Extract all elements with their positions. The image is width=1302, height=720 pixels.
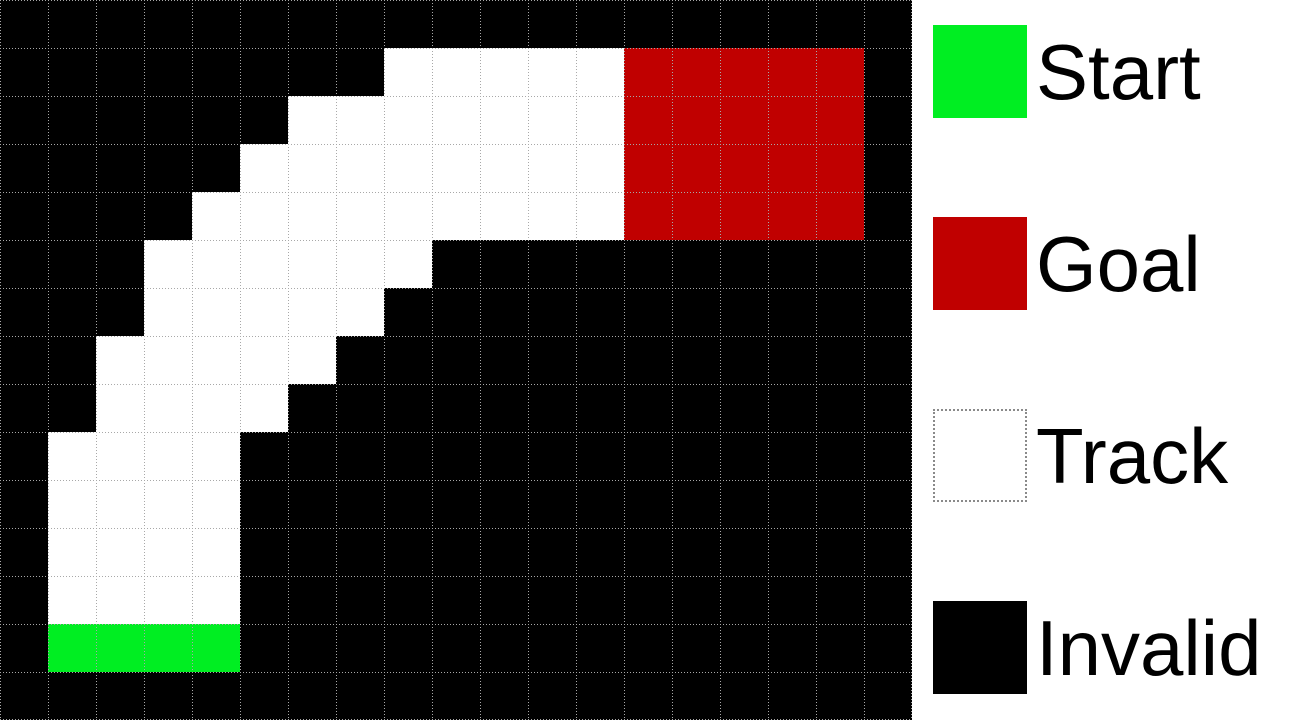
legend-item-track: Track bbox=[933, 409, 1228, 502]
grid-cell bbox=[864, 144, 912, 192]
grid-cell bbox=[96, 480, 144, 528]
grid-cell bbox=[48, 0, 96, 48]
grid-cell bbox=[768, 480, 816, 528]
grid-cell bbox=[672, 672, 720, 720]
grid-cell bbox=[720, 288, 768, 336]
grid-cell bbox=[336, 192, 384, 240]
grid-cell bbox=[144, 672, 192, 720]
grid-cell bbox=[816, 144, 864, 192]
grid-cell bbox=[672, 624, 720, 672]
grid-cell bbox=[768, 624, 816, 672]
grid-cell bbox=[96, 384, 144, 432]
grid-cell bbox=[192, 240, 240, 288]
grid-cell bbox=[192, 528, 240, 576]
grid-cell bbox=[144, 192, 192, 240]
grid-cell bbox=[384, 528, 432, 576]
grid-cell bbox=[432, 384, 480, 432]
grid-cell bbox=[96, 288, 144, 336]
grid-cell bbox=[288, 480, 336, 528]
grid-cell bbox=[0, 144, 48, 192]
grid-cell bbox=[864, 624, 912, 672]
grid-cell bbox=[576, 336, 624, 384]
grid-cell bbox=[672, 144, 720, 192]
grid-cell bbox=[144, 336, 192, 384]
legend-label-start: Start bbox=[1036, 33, 1201, 111]
grid-cell bbox=[576, 48, 624, 96]
start-swatch bbox=[933, 25, 1027, 118]
grid-cell bbox=[576, 144, 624, 192]
legend-item-invalid: Invalid bbox=[933, 601, 1261, 694]
grid-cell bbox=[144, 240, 192, 288]
racetrack-visualization: Start Goal Track Invalid bbox=[0, 0, 1302, 720]
grid-cell bbox=[240, 96, 288, 144]
grid-cell bbox=[144, 624, 192, 672]
grid-cell bbox=[624, 48, 672, 96]
grid-cell bbox=[720, 96, 768, 144]
grid-cell bbox=[0, 240, 48, 288]
grid-cell bbox=[816, 240, 864, 288]
grid-cell bbox=[528, 192, 576, 240]
grid-cell bbox=[624, 384, 672, 432]
grid-cell bbox=[672, 288, 720, 336]
grid-cell bbox=[528, 624, 576, 672]
grid-cell bbox=[432, 672, 480, 720]
grid-cell bbox=[672, 336, 720, 384]
grid-cell bbox=[384, 432, 432, 480]
grid-cell bbox=[240, 240, 288, 288]
grid-cell bbox=[768, 528, 816, 576]
grid-cell bbox=[288, 48, 336, 96]
grid-cell bbox=[288, 96, 336, 144]
grid-cell bbox=[480, 480, 528, 528]
grid-cell bbox=[144, 528, 192, 576]
grid-cell bbox=[816, 576, 864, 624]
grid-cell bbox=[336, 336, 384, 384]
grid-cell bbox=[480, 288, 528, 336]
grid-cell bbox=[144, 480, 192, 528]
grid-cell bbox=[768, 288, 816, 336]
grid-cell bbox=[480, 576, 528, 624]
grid-cell bbox=[720, 384, 768, 432]
grid-cell bbox=[528, 96, 576, 144]
grid-cell bbox=[480, 672, 528, 720]
grid-cell bbox=[288, 0, 336, 48]
grid-cell bbox=[96, 336, 144, 384]
grid-cell bbox=[432, 576, 480, 624]
grid-cell bbox=[288, 336, 336, 384]
grid-cell bbox=[576, 672, 624, 720]
grid-cell bbox=[864, 240, 912, 288]
grid-cell bbox=[768, 672, 816, 720]
grid-cell bbox=[240, 432, 288, 480]
grid-cell bbox=[384, 624, 432, 672]
grid-cell bbox=[432, 192, 480, 240]
grid-cell bbox=[720, 0, 768, 48]
grid-cell bbox=[384, 672, 432, 720]
grid-cell bbox=[0, 96, 48, 144]
grid-cell bbox=[96, 432, 144, 480]
grid-cell bbox=[240, 672, 288, 720]
grid-cell bbox=[432, 0, 480, 48]
grid-cell bbox=[48, 288, 96, 336]
grid-cell bbox=[336, 480, 384, 528]
grid-cell bbox=[816, 192, 864, 240]
grid-cell bbox=[432, 480, 480, 528]
grid-cell bbox=[0, 336, 48, 384]
grid-cell bbox=[864, 432, 912, 480]
grid-cell bbox=[384, 576, 432, 624]
grid-cell bbox=[96, 624, 144, 672]
grid-cell bbox=[624, 240, 672, 288]
grid-cell bbox=[336, 672, 384, 720]
grid-cell bbox=[768, 576, 816, 624]
grid-cell bbox=[240, 528, 288, 576]
grid-cell bbox=[0, 480, 48, 528]
grid-cell bbox=[528, 0, 576, 48]
grid-cell bbox=[0, 0, 48, 48]
grid-cell bbox=[528, 480, 576, 528]
grid-cell bbox=[528, 576, 576, 624]
grid-cell bbox=[432, 624, 480, 672]
grid-cell bbox=[384, 0, 432, 48]
legend-label-invalid: Invalid bbox=[1036, 609, 1261, 687]
grid-cell bbox=[240, 288, 288, 336]
grid-cell bbox=[48, 576, 96, 624]
grid-cell bbox=[816, 48, 864, 96]
grid-cell bbox=[768, 336, 816, 384]
grid-cell bbox=[240, 0, 288, 48]
grid-cell bbox=[192, 672, 240, 720]
grid-cell bbox=[576, 480, 624, 528]
grid-cell bbox=[240, 144, 288, 192]
grid-cell bbox=[864, 480, 912, 528]
grid-cell bbox=[624, 480, 672, 528]
grid-cell bbox=[432, 336, 480, 384]
grid-cell bbox=[720, 432, 768, 480]
grid-cell bbox=[528, 432, 576, 480]
legend: Start Goal Track Invalid bbox=[912, 0, 1302, 720]
grid-cell bbox=[0, 672, 48, 720]
grid-cell bbox=[528, 144, 576, 192]
grid-cell bbox=[96, 144, 144, 192]
grid-cell bbox=[96, 576, 144, 624]
grid-cell bbox=[96, 240, 144, 288]
grid-cell bbox=[816, 96, 864, 144]
grid-cell bbox=[528, 336, 576, 384]
grid-cell bbox=[192, 192, 240, 240]
grid-cell bbox=[240, 480, 288, 528]
grid-cell bbox=[720, 144, 768, 192]
grid-cell bbox=[144, 288, 192, 336]
grid-cell bbox=[624, 576, 672, 624]
grid-cell bbox=[0, 432, 48, 480]
grid-cell bbox=[48, 384, 96, 432]
grid-cell bbox=[336, 240, 384, 288]
grid-cell bbox=[816, 0, 864, 48]
grid-cell bbox=[384, 48, 432, 96]
grid-cell bbox=[384, 336, 432, 384]
goal-swatch bbox=[933, 217, 1027, 310]
grid-cell bbox=[768, 240, 816, 288]
grid-cell bbox=[192, 144, 240, 192]
grid-cell bbox=[672, 384, 720, 432]
grid-cell bbox=[624, 144, 672, 192]
grid-cell bbox=[288, 384, 336, 432]
grid-cell bbox=[144, 144, 192, 192]
grid-cell bbox=[672, 96, 720, 144]
grid-cell bbox=[144, 384, 192, 432]
grid-cell bbox=[768, 96, 816, 144]
grid-cell bbox=[768, 0, 816, 48]
grid-cell bbox=[48, 240, 96, 288]
grid-cell bbox=[192, 624, 240, 672]
grid-cell bbox=[624, 432, 672, 480]
grid-cell bbox=[816, 480, 864, 528]
grid-cell bbox=[96, 528, 144, 576]
grid-cell bbox=[144, 96, 192, 144]
grid-cell bbox=[768, 384, 816, 432]
grid-cell bbox=[864, 528, 912, 576]
grid-cell bbox=[192, 48, 240, 96]
grid-cell bbox=[192, 0, 240, 48]
grid-cell bbox=[96, 96, 144, 144]
grid-cell bbox=[336, 624, 384, 672]
grid-cell bbox=[864, 384, 912, 432]
grid-cell bbox=[672, 0, 720, 48]
grid-cell bbox=[480, 528, 528, 576]
grid-cell bbox=[576, 384, 624, 432]
grid-cell bbox=[816, 624, 864, 672]
grid-cell bbox=[672, 240, 720, 288]
grid-cell bbox=[192, 288, 240, 336]
grid-cell bbox=[432, 432, 480, 480]
grid-cell bbox=[816, 432, 864, 480]
grid-cell bbox=[288, 144, 336, 192]
grid-cell bbox=[480, 336, 528, 384]
grid-cell bbox=[528, 384, 576, 432]
grid-cell bbox=[0, 192, 48, 240]
grid-cell bbox=[240, 48, 288, 96]
grid-cell bbox=[48, 528, 96, 576]
grid-cell bbox=[0, 528, 48, 576]
grid-cell bbox=[864, 48, 912, 96]
grid-cell bbox=[144, 48, 192, 96]
grid-cell bbox=[288, 528, 336, 576]
grid-cell bbox=[192, 384, 240, 432]
grid-cell bbox=[576, 192, 624, 240]
grid-cell bbox=[672, 480, 720, 528]
grid-cell bbox=[384, 192, 432, 240]
grid-cell bbox=[96, 48, 144, 96]
grid-cell bbox=[288, 288, 336, 336]
grid-cell bbox=[336, 384, 384, 432]
grid-cell bbox=[240, 384, 288, 432]
grid-cell bbox=[432, 48, 480, 96]
grid-cell bbox=[480, 384, 528, 432]
grid-cell bbox=[480, 96, 528, 144]
grid-cell bbox=[768, 432, 816, 480]
grid-cell bbox=[144, 576, 192, 624]
grid-cell bbox=[864, 336, 912, 384]
grid-cell bbox=[192, 480, 240, 528]
grid-cell bbox=[576, 0, 624, 48]
legend-label-track: Track bbox=[1036, 417, 1228, 495]
grid-cell bbox=[0, 576, 48, 624]
grid-cell bbox=[720, 48, 768, 96]
grid-cell bbox=[240, 336, 288, 384]
grid-cell bbox=[624, 0, 672, 48]
grid-cell bbox=[720, 576, 768, 624]
grid-cell bbox=[336, 576, 384, 624]
grid-cell bbox=[48, 144, 96, 192]
grid-cell bbox=[336, 144, 384, 192]
racetrack-grid bbox=[0, 0, 912, 720]
grid-cell bbox=[96, 672, 144, 720]
track-swatch bbox=[933, 409, 1027, 502]
grid-cell bbox=[384, 384, 432, 432]
grid-cell bbox=[528, 288, 576, 336]
grid-cell bbox=[48, 480, 96, 528]
grid-cell bbox=[96, 0, 144, 48]
grid-cell bbox=[528, 528, 576, 576]
grid-cell bbox=[336, 432, 384, 480]
legend-item-goal: Goal bbox=[933, 217, 1201, 310]
grid-cell bbox=[528, 672, 576, 720]
grid-cell bbox=[48, 624, 96, 672]
grid-cell bbox=[384, 240, 432, 288]
grid-cell bbox=[480, 192, 528, 240]
grid-cell bbox=[48, 336, 96, 384]
grid-cells bbox=[0, 0, 912, 720]
grid-cell bbox=[528, 240, 576, 288]
grid-cell bbox=[864, 0, 912, 48]
grid-cell bbox=[240, 624, 288, 672]
grid-cell bbox=[336, 288, 384, 336]
grid-cell bbox=[48, 192, 96, 240]
grid-cell bbox=[816, 672, 864, 720]
grid-cell bbox=[288, 576, 336, 624]
grid-cell bbox=[144, 432, 192, 480]
grid-cell bbox=[624, 624, 672, 672]
grid-cell bbox=[576, 96, 624, 144]
grid-cell bbox=[0, 384, 48, 432]
grid-cell bbox=[720, 480, 768, 528]
grid-cell bbox=[624, 192, 672, 240]
grid-cell bbox=[288, 240, 336, 288]
grid-cell bbox=[288, 672, 336, 720]
grid-cell bbox=[48, 432, 96, 480]
grid-cell bbox=[672, 48, 720, 96]
grid-cell bbox=[672, 432, 720, 480]
grid-cell bbox=[816, 288, 864, 336]
grid-cell bbox=[288, 192, 336, 240]
grid-cell bbox=[240, 576, 288, 624]
grid-cell bbox=[576, 624, 624, 672]
grid-cell bbox=[720, 624, 768, 672]
grid-cell bbox=[864, 576, 912, 624]
grid-cell bbox=[768, 48, 816, 96]
grid-cell bbox=[48, 672, 96, 720]
grid-cell bbox=[336, 48, 384, 96]
grid-cell bbox=[480, 624, 528, 672]
grid-cell bbox=[480, 48, 528, 96]
grid-cell bbox=[528, 48, 576, 96]
grid-cell bbox=[816, 384, 864, 432]
grid-cell bbox=[432, 144, 480, 192]
grid-cell bbox=[816, 528, 864, 576]
grid-cell bbox=[96, 192, 144, 240]
grid-cell bbox=[0, 624, 48, 672]
grid-cell bbox=[816, 336, 864, 384]
grid-cell bbox=[0, 288, 48, 336]
grid-cell bbox=[720, 240, 768, 288]
grid-cell bbox=[624, 336, 672, 384]
grid-cell bbox=[576, 432, 624, 480]
grid-cell bbox=[336, 528, 384, 576]
grid-cell bbox=[624, 288, 672, 336]
grid-cell bbox=[624, 528, 672, 576]
grid-cell bbox=[288, 624, 336, 672]
legend-item-start: Start bbox=[933, 25, 1201, 118]
grid-cell bbox=[288, 432, 336, 480]
grid-cell bbox=[480, 144, 528, 192]
grid-cell bbox=[720, 192, 768, 240]
grid-cell bbox=[384, 96, 432, 144]
grid-cell bbox=[384, 144, 432, 192]
grid-cell bbox=[192, 576, 240, 624]
grid-cell bbox=[432, 96, 480, 144]
grid-cell bbox=[624, 96, 672, 144]
grid-cell bbox=[576, 576, 624, 624]
grid-cell bbox=[672, 528, 720, 576]
grid-cell bbox=[336, 96, 384, 144]
grid-cell bbox=[864, 288, 912, 336]
grid-cell bbox=[384, 480, 432, 528]
grid-cell bbox=[624, 672, 672, 720]
grid-cell bbox=[240, 192, 288, 240]
legend-label-goal: Goal bbox=[1036, 225, 1201, 303]
grid-cell bbox=[720, 336, 768, 384]
grid-cell bbox=[192, 336, 240, 384]
grid-cell bbox=[768, 192, 816, 240]
grid-cell bbox=[0, 48, 48, 96]
invalid-swatch bbox=[933, 601, 1027, 694]
grid-cell bbox=[432, 240, 480, 288]
grid-cell bbox=[576, 528, 624, 576]
grid-cell bbox=[48, 48, 96, 96]
grid-cell bbox=[672, 192, 720, 240]
grid-cell bbox=[864, 192, 912, 240]
grid-cell bbox=[144, 0, 192, 48]
grid-cell bbox=[336, 0, 384, 48]
grid-cell bbox=[720, 528, 768, 576]
grid-cell bbox=[864, 96, 912, 144]
grid-cell bbox=[576, 288, 624, 336]
grid-cell bbox=[48, 96, 96, 144]
grid-cell bbox=[768, 144, 816, 192]
grid-cell bbox=[192, 96, 240, 144]
grid-cell bbox=[432, 528, 480, 576]
grid-cell bbox=[720, 672, 768, 720]
grid-cell bbox=[576, 240, 624, 288]
grid-cell bbox=[672, 576, 720, 624]
grid-cell bbox=[480, 0, 528, 48]
grid-cell bbox=[192, 432, 240, 480]
grid-cell bbox=[480, 432, 528, 480]
grid-cell bbox=[384, 288, 432, 336]
grid-cell bbox=[432, 288, 480, 336]
grid-cell bbox=[864, 672, 912, 720]
